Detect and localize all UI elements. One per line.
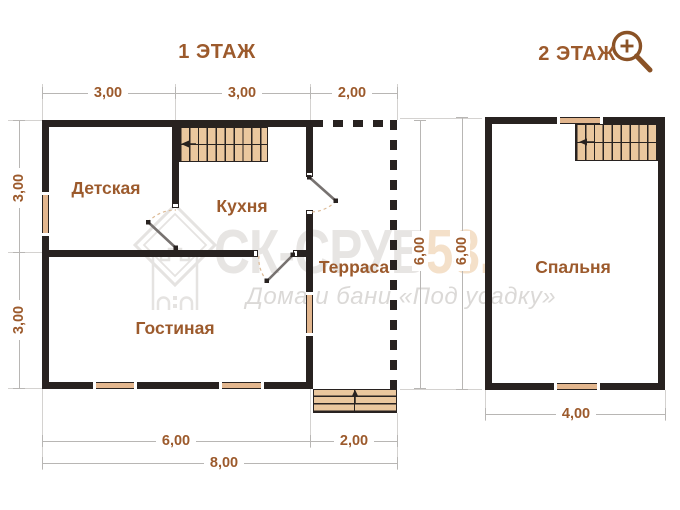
dim-f1-bottom-total: 8,00 bbox=[204, 455, 244, 471]
dim-f1-top-3: 2,00 bbox=[332, 85, 372, 101]
door-kids-room bbox=[146, 210, 178, 250]
dim-f1-top-2: 3,00 bbox=[222, 85, 262, 101]
f1-stairs-arrow left-arrow-icon bbox=[181, 141, 196, 148]
room-label-kids: Детская bbox=[51, 178, 161, 198]
entrance-arrow up-arrow-icon bbox=[352, 390, 359, 405]
dim-f1-left-1: 3,00 bbox=[11, 168, 27, 208]
dim-f1-bottom-porch: 2,00 bbox=[334, 433, 374, 449]
dim-f1-left-2: 3,00 bbox=[11, 300, 27, 340]
floor-plan-canvas: СК-СРУБ53. Дома и бани «Под усадку» bbox=[0, 0, 680, 510]
room-label-terrace: Терраса bbox=[299, 257, 409, 277]
f2-stairs-arrow left-arrow-icon bbox=[579, 139, 594, 146]
door-living-terrace bbox=[259, 253, 295, 284]
dim-f2-left: 6,00 bbox=[454, 231, 470, 271]
dim-f1-top-1: 3,00 bbox=[88, 85, 128, 101]
door-kitchen-terrace bbox=[307, 175, 338, 212]
room-label-living: Гостиная bbox=[120, 318, 230, 338]
room-label-kitchen: Кухня bbox=[187, 196, 297, 216]
floor1-title: 1 ЭТАЖ bbox=[147, 41, 287, 63]
dim-f1-bottom-main: 6,00 bbox=[156, 433, 196, 449]
dim-f1-right: 6,00 bbox=[412, 231, 428, 271]
floor2-title: 2 ЭТАЖ bbox=[507, 43, 647, 65]
dim-f2-bottom: 4,00 bbox=[556, 406, 596, 422]
room-label-bedroom: Спальня bbox=[518, 257, 628, 277]
